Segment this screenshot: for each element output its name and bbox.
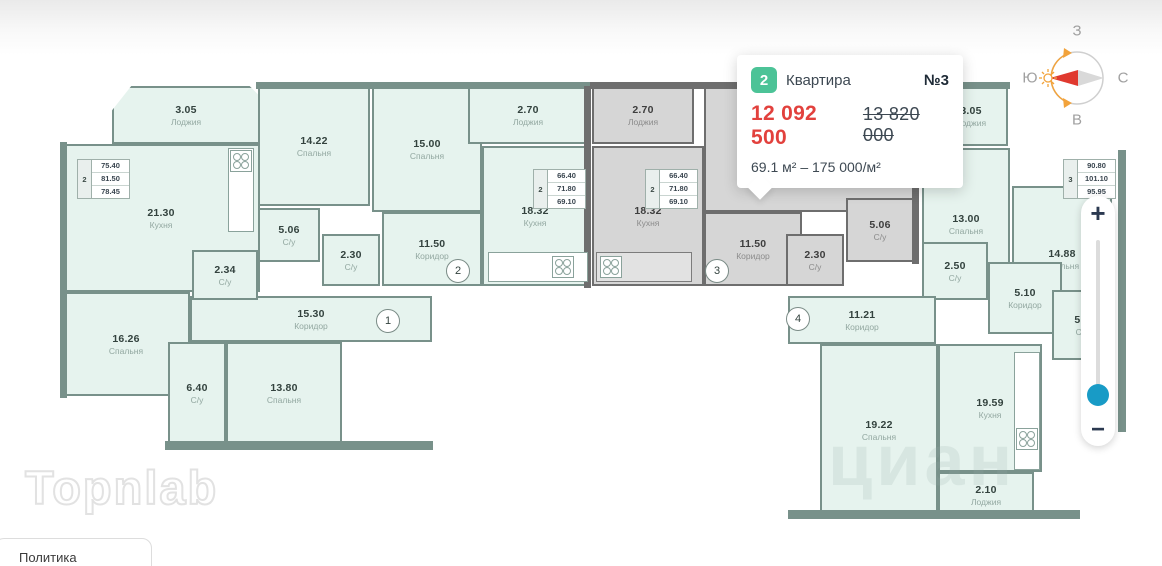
area-value-cell: 81.50: [92, 173, 129, 186]
room-label: 2.70Лоджия: [594, 88, 692, 142]
room[interactable]: 6.40С/у: [168, 342, 226, 444]
zoom-in-button[interactable]: +: [1081, 198, 1115, 229]
topnlab-logo: Topnlab: [25, 460, 218, 515]
apartment-type-label: Квартира: [786, 72, 915, 89]
room-label: 5.06С/у: [848, 200, 912, 260]
policy-button[interactable]: Политика: [0, 538, 152, 566]
area-value-cell: 69.10: [548, 196, 585, 208]
entrance-marker: 4: [786, 307, 810, 331]
area-value-cell: 66.40: [548, 170, 585, 183]
rooms-count-cell: 3: [1064, 160, 1078, 198]
rooms-count-cell: 2: [78, 160, 92, 198]
room[interactable]: 11.21Коридор: [788, 296, 936, 344]
apartment-price: 12 092 500: [751, 102, 851, 150]
area-table: 390.80101.1095.95: [1064, 160, 1115, 198]
room-label: 11.21Коридор: [790, 298, 934, 342]
wall-segment: [165, 441, 433, 450]
room[interactable]: 13.80Спальня: [226, 342, 342, 444]
stove-icon: [1016, 428, 1038, 450]
room-label: 5.06С/у: [260, 210, 318, 260]
rooms-count-cell: 2: [534, 170, 548, 208]
area-value-cell: 71.80: [660, 183, 697, 196]
wall-segment: [256, 82, 592, 89]
entrance-marker: 2: [446, 259, 470, 283]
room[interactable]: 2.50С/у: [922, 242, 988, 300]
zoom-out-button[interactable]: −: [1081, 416, 1115, 444]
room[interactable]: 2.34С/у: [192, 250, 258, 300]
floorplan-viewer: 3.05Лоджия21.30Кухня16.26Спальня15.30Кор…: [0, 0, 1162, 566]
room-label: 2.70Лоджия: [470, 88, 586, 142]
room[interactable]: 2.70Лоджия: [592, 86, 694, 144]
room[interactable]: 3.05Лоджия: [112, 86, 260, 144]
rooms-count-cell: 2: [646, 170, 660, 208]
room[interactable]: 15.00Спальня: [372, 86, 482, 212]
room[interactable]: 2.70Лоджия: [468, 86, 588, 144]
room-label: 14.22Спальня: [260, 88, 368, 204]
compass-south-label: Ю: [1022, 70, 1037, 87]
apartment-number: №3: [924, 72, 949, 89]
wall-segment: [60, 142, 67, 398]
stove-icon: [230, 150, 252, 172]
room-label: 19.22Спальня: [822, 346, 936, 514]
room-label: 3.05Лоджия: [114, 88, 258, 142]
room-label: 2.34С/у: [194, 252, 256, 298]
area-value-cell: 66.40: [660, 170, 697, 183]
room-label: 15.00Спальня: [374, 88, 480, 210]
room-label: 13.80Спальня: [228, 344, 340, 442]
apartment-area-line: 69.1 м² – 175 000/м²: [751, 159, 949, 175]
compass-west-label: З: [1072, 23, 1081, 40]
room[interactable]: 5.06С/у: [846, 198, 914, 262]
stove-icon: [600, 256, 622, 278]
wall-segment: [788, 510, 1080, 519]
room-label: 2.30С/у: [324, 236, 378, 284]
zoom-slider-track[interactable]: [1096, 240, 1100, 390]
area-value-cell: 90.80: [1078, 160, 1115, 173]
room[interactable]: 5.10Коридор: [988, 262, 1062, 334]
room[interactable]: 5.06С/у: [258, 208, 320, 262]
room-label: 5.10Коридор: [990, 264, 1060, 332]
room-label: 2.50С/у: [924, 244, 986, 298]
room[interactable]: 19.22Спальня: [820, 344, 938, 516]
room[interactable]: 14.22Спальня: [258, 86, 370, 206]
room[interactable]: 2.30С/у: [322, 234, 380, 286]
stove-icon: [552, 256, 574, 278]
area-value-cell: 75.40: [92, 160, 129, 173]
zoom-control: + −: [1081, 196, 1115, 446]
area-table: 266.4071.8069.10: [534, 170, 585, 208]
area-table: 275.4081.5078.45: [78, 160, 129, 198]
entrance-marker: 3: [705, 259, 729, 283]
area-value-cell: 101.10: [1078, 173, 1115, 186]
apartment-tooltip: 2 Квартира №3 12 092 500 13 820 000 69.1…: [737, 55, 963, 188]
apartment-old-price: 13 820 000: [863, 104, 949, 146]
rooms-count-badge: 2: [751, 67, 777, 93]
entrance-marker: 1: [376, 309, 400, 333]
area-value-cell: 71.80: [548, 183, 585, 196]
area-value-cell: 78.45: [92, 186, 129, 198]
compass-north-label: С: [1118, 70, 1129, 87]
room[interactable]: 2.30С/у: [786, 234, 844, 286]
compass-east-label: В: [1072, 112, 1082, 129]
area-table: 266.4071.8069.10: [646, 170, 697, 208]
compass: З Ю С В: [1022, 18, 1142, 128]
room-label: 6.40С/у: [170, 344, 224, 442]
zoom-slider-handle[interactable]: [1087, 384, 1109, 406]
area-value-cell: 69.10: [660, 196, 697, 208]
kitchen-counter: [1014, 352, 1040, 470]
room-label: 2.30С/у: [788, 236, 842, 284]
wall-segment: [1118, 150, 1126, 432]
